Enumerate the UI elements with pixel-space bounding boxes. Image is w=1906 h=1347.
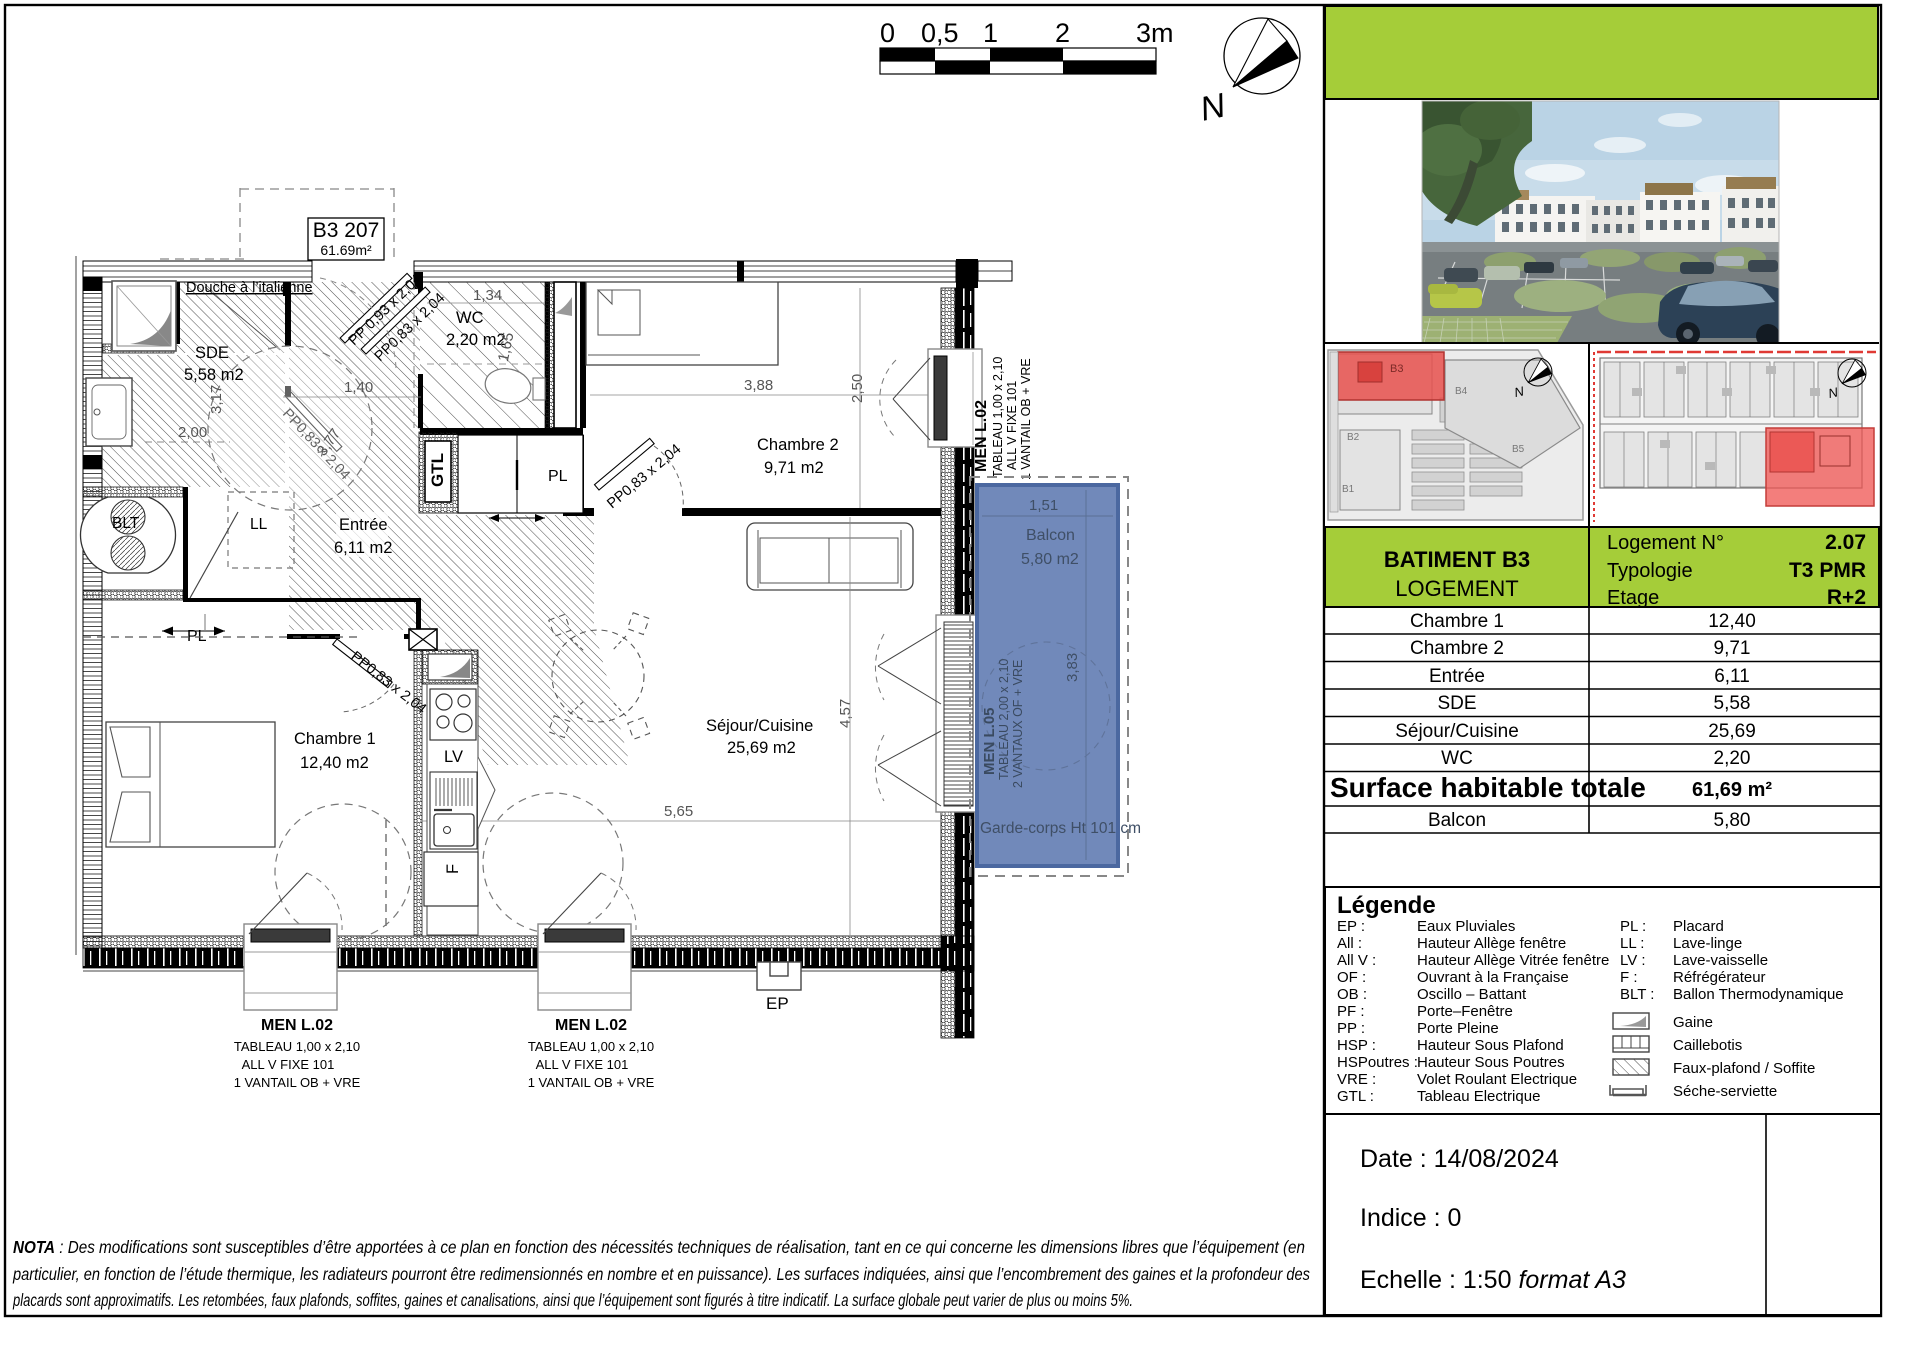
svg-text:Placard: Placard — [1673, 918, 1724, 935]
svg-text:3,83: 3,83 — [1064, 653, 1081, 682]
svg-text:Chambre 1: Chambre 1 — [294, 730, 376, 748]
svg-text:LL: LL — [250, 516, 268, 533]
svg-text:Hauteur Sous Poutres: Hauteur Sous Poutres — [1417, 1054, 1565, 1071]
svg-text:ALL V FIXE 101: ALL V FIXE 101 — [1005, 381, 1019, 470]
svg-text:VRE :: VRE : — [1337, 1071, 1376, 1088]
svg-text:All :: All : — [1337, 935, 1362, 952]
svg-text:1 VANTAIL OB + VRE: 1 VANTAIL OB + VRE — [1019, 358, 1033, 480]
svg-text:OF :: OF : — [1337, 969, 1366, 986]
svg-text:Chambre 2: Chambre 2 — [1410, 638, 1504, 659]
svg-text:LL :: LL : — [1620, 935, 1644, 952]
svg-text:F :: F : — [1620, 969, 1638, 986]
svg-text:MEN L.02: MEN L.02 — [261, 1017, 333, 1034]
svg-text:Porte Pleine: Porte Pleine — [1417, 1020, 1499, 1037]
svg-text:OB :: OB : — [1337, 986, 1367, 1003]
svg-text:PL: PL — [548, 468, 568, 485]
svg-text:MEN L.02: MEN L.02 — [973, 400, 990, 472]
svg-text:Ballon Thermodynamique: Ballon Thermodynamique — [1673, 986, 1844, 1003]
svg-text:Hauteur Allège fenêtre: Hauteur Allège fenêtre — [1417, 935, 1566, 952]
svg-text:3,88: 3,88 — [744, 377, 773, 394]
svg-text:2,00: 2,00 — [178, 424, 207, 441]
svg-text:Lave-linge: Lave-linge — [1673, 935, 1742, 952]
svg-text:Séjour/Cuisine: Séjour/Cuisine — [1395, 721, 1519, 742]
svg-text:Entrée: Entrée — [1429, 666, 1485, 687]
svg-text:Etage: Etage — [1607, 587, 1659, 609]
svg-text:25,69 m2: 25,69 m2 — [727, 739, 796, 757]
svg-text:Balcon: Balcon — [1026, 527, 1075, 544]
svg-text:particulier, en fonction de l’: particulier, en fonction de l’étude ther… — [12, 1264, 1310, 1284]
svg-text:B1: B1 — [1342, 484, 1355, 495]
svg-text:WC: WC — [456, 309, 484, 327]
svg-text:9,71: 9,71 — [1714, 638, 1751, 659]
svg-text:PP :: PP : — [1337, 1020, 1365, 1037]
svg-text:EP: EP — [766, 994, 789, 1013]
svg-text:SDE: SDE — [1437, 693, 1476, 714]
svg-text:MEN L.05: MEN L.05 — [981, 707, 998, 775]
svg-text:BLT: BLT — [112, 515, 140, 532]
svg-text:Douche à l’italienne: Douche à l’italienne — [186, 280, 313, 296]
svg-text:Entrée: Entrée — [339, 516, 388, 534]
svg-text:Séche-serviette: Séche-serviette — [1673, 1083, 1777, 1100]
svg-text:PF :: PF : — [1337, 1003, 1365, 1020]
svg-text:SDE: SDE — [195, 344, 229, 362]
svg-text:B3: B3 — [1390, 363, 1403, 375]
svg-text:LV: LV — [444, 748, 463, 766]
svg-text:Porte–Fenêtre: Porte–Fenêtre — [1417, 1003, 1513, 1020]
svg-text:HSP :: HSP : — [1337, 1037, 1376, 1054]
svg-text:1,51: 1,51 — [1029, 497, 1058, 514]
svg-text:Echelle : 1:50 format A3: Echelle : 1:50 format A3 — [1360, 1266, 1626, 1294]
svg-text:1 VANTAIL OB + VRE: 1 VANTAIL OB + VRE — [234, 1075, 361, 1090]
svg-text:5,80: 5,80 — [1714, 810, 1751, 831]
svg-text:6,11: 6,11 — [1714, 666, 1750, 687]
svg-text:0,5: 0,5 — [921, 18, 959, 48]
svg-text:TABLEAU 1,00 x 2,10: TABLEAU 1,00 x 2,10 — [234, 1039, 360, 1054]
svg-text:R+2: R+2 — [1827, 586, 1866, 609]
svg-text:Balcon: Balcon — [1428, 810, 1486, 831]
svg-text:NOTA : Des modifications sont: NOTA : Des modifications sont susceptibl… — [13, 1237, 1305, 1257]
svg-text:Légende: Légende — [1337, 892, 1436, 919]
svg-text:Faux-plafond / Soffite: Faux-plafond / Soffite — [1673, 1060, 1815, 1077]
svg-text:Séjour/Cuisine: Séjour/Cuisine — [706, 717, 813, 735]
svg-text:TABLEAU 1,00 x 2,10: TABLEAU 1,00 x 2,10 — [991, 357, 1005, 478]
svg-text:GTL :: GTL : — [1337, 1088, 1374, 1105]
svg-text:Gaine: Gaine — [1673, 1014, 1713, 1031]
svg-text:2: 2 — [1055, 18, 1070, 48]
svg-text:Hauteur Allège Vitrée fenêtre: Hauteur Allège Vitrée fenêtre — [1417, 952, 1609, 969]
svg-text:2,20 m2: 2,20 m2 — [446, 331, 506, 349]
svg-text:25,69: 25,69 — [1708, 721, 1756, 742]
svg-text:6,11 m2: 6,11 m2 — [334, 539, 392, 557]
svg-text:All V :: All V : — [1337, 952, 1376, 969]
svg-text:N: N — [1197, 86, 1229, 128]
svg-text:PL :: PL : — [1620, 918, 1646, 935]
svg-text:4,57: 4,57 — [837, 699, 854, 728]
svg-text:Tableau Electrique: Tableau Electrique — [1417, 1088, 1540, 1105]
svg-text:B5: B5 — [1512, 444, 1525, 455]
svg-text:Garde-corps Ht 101 cm: Garde-corps Ht 101 cm — [980, 820, 1141, 837]
svg-text:5,58: 5,58 — [1714, 693, 1751, 714]
svg-text:TABLEAU 1,00 x 2,10: TABLEAU 1,00 x 2,10 — [528, 1039, 654, 1054]
svg-text:Eaux Pluviales: Eaux Pluviales — [1417, 918, 1515, 935]
svg-text:1,40: 1,40 — [344, 379, 373, 396]
svg-text:5,80 m2: 5,80 m2 — [1021, 551, 1079, 568]
svg-text:Logement N°: Logement N° — [1607, 532, 1724, 554]
svg-text:1: 1 — [983, 18, 998, 48]
svg-text:2,20: 2,20 — [1714, 748, 1751, 769]
svg-text:placards sont approximatifs. L: placards sont approximatifs. Les retombé… — [12, 1290, 1133, 1310]
svg-text:ALL V FIXE 101: ALL V FIXE 101 — [242, 1057, 335, 1072]
svg-text:F: F — [444, 864, 462, 874]
svg-text:12,40: 12,40 — [1708, 611, 1756, 632]
svg-text:TABLEAU 2,00 x 2,10: TABLEAU 2,00 x 2,10 — [997, 659, 1011, 780]
svg-text:Volet Roulant Electrique: Volet Roulant Electrique — [1417, 1071, 1577, 1088]
svg-text:Hauteur Sous Plafond: Hauteur Sous Plafond — [1417, 1037, 1564, 1054]
svg-text:BLT :: BLT : — [1620, 986, 1654, 1003]
svg-text:MEN L.02: MEN L.02 — [555, 1017, 627, 1034]
svg-text:EP :: EP : — [1337, 918, 1365, 935]
svg-text:Caillebotis: Caillebotis — [1673, 1037, 1742, 1054]
svg-text:9,71 m2: 9,71 m2 — [764, 459, 824, 477]
svg-text:B4: B4 — [1455, 386, 1468, 397]
svg-text:GTL: GTL — [428, 453, 447, 487]
svg-text:Lave-vaisselle: Lave-vaisselle — [1673, 952, 1768, 969]
svg-text:LOGEMENT: LOGEMENT — [1395, 576, 1518, 601]
svg-text:WC: WC — [1441, 748, 1473, 769]
svg-text:BATIMENT B3: BATIMENT B3 — [1384, 547, 1530, 572]
svg-text:B3 207: B3 207 — [313, 219, 380, 242]
svg-text:1,34: 1,34 — [473, 287, 502, 304]
svg-text:61,69 m²: 61,69 m² — [1692, 779, 1772, 801]
svg-text:Oscillo – Battant: Oscillo – Battant — [1417, 986, 1527, 1003]
svg-text:LV :: LV : — [1620, 952, 1646, 969]
svg-text:2,50: 2,50 — [849, 374, 866, 403]
svg-text:5,65: 5,65 — [664, 803, 693, 820]
svg-text:Surface habitable totale: Surface habitable totale — [1330, 772, 1646, 803]
svg-text:12,40 m2: 12,40 m2 — [300, 754, 369, 772]
svg-text:2 VANTAUX OF + VRE: 2 VANTAUX OF + VRE — [1011, 660, 1025, 788]
svg-text:Ouvrant à la Française: Ouvrant à la Française — [1417, 969, 1569, 986]
svg-text:61.69m²: 61.69m² — [320, 242, 372, 258]
svg-text:Réfrégérateur: Réfrégérateur — [1673, 969, 1766, 986]
svg-text:3m: 3m — [1136, 18, 1174, 48]
svg-text:B2: B2 — [1347, 432, 1360, 443]
svg-text:Chambre 1: Chambre 1 — [1410, 611, 1504, 632]
svg-text:0: 0 — [880, 18, 895, 48]
svg-text:Date : 14/08/2024: Date : 14/08/2024 — [1360, 1145, 1559, 1173]
svg-text:HSPoutres :: HSPoutres : — [1337, 1054, 1418, 1071]
svg-text:3,17: 3,17 — [208, 385, 225, 414]
svg-text:T3 PMR: T3 PMR — [1789, 559, 1866, 582]
svg-text:5,58 m2: 5,58 m2 — [184, 366, 244, 384]
svg-text:Indice : 0: Indice : 0 — [1360, 1204, 1461, 1232]
svg-text:1 VANTAIL OB + VRE: 1 VANTAIL OB + VRE — [528, 1075, 655, 1090]
svg-text:ALL V FIXE 101: ALL V FIXE 101 — [536, 1057, 629, 1072]
svg-text:Chambre 2: Chambre 2 — [757, 436, 839, 454]
svg-text:2.07: 2.07 — [1825, 531, 1866, 554]
svg-text:Typologie: Typologie — [1607, 560, 1693, 582]
